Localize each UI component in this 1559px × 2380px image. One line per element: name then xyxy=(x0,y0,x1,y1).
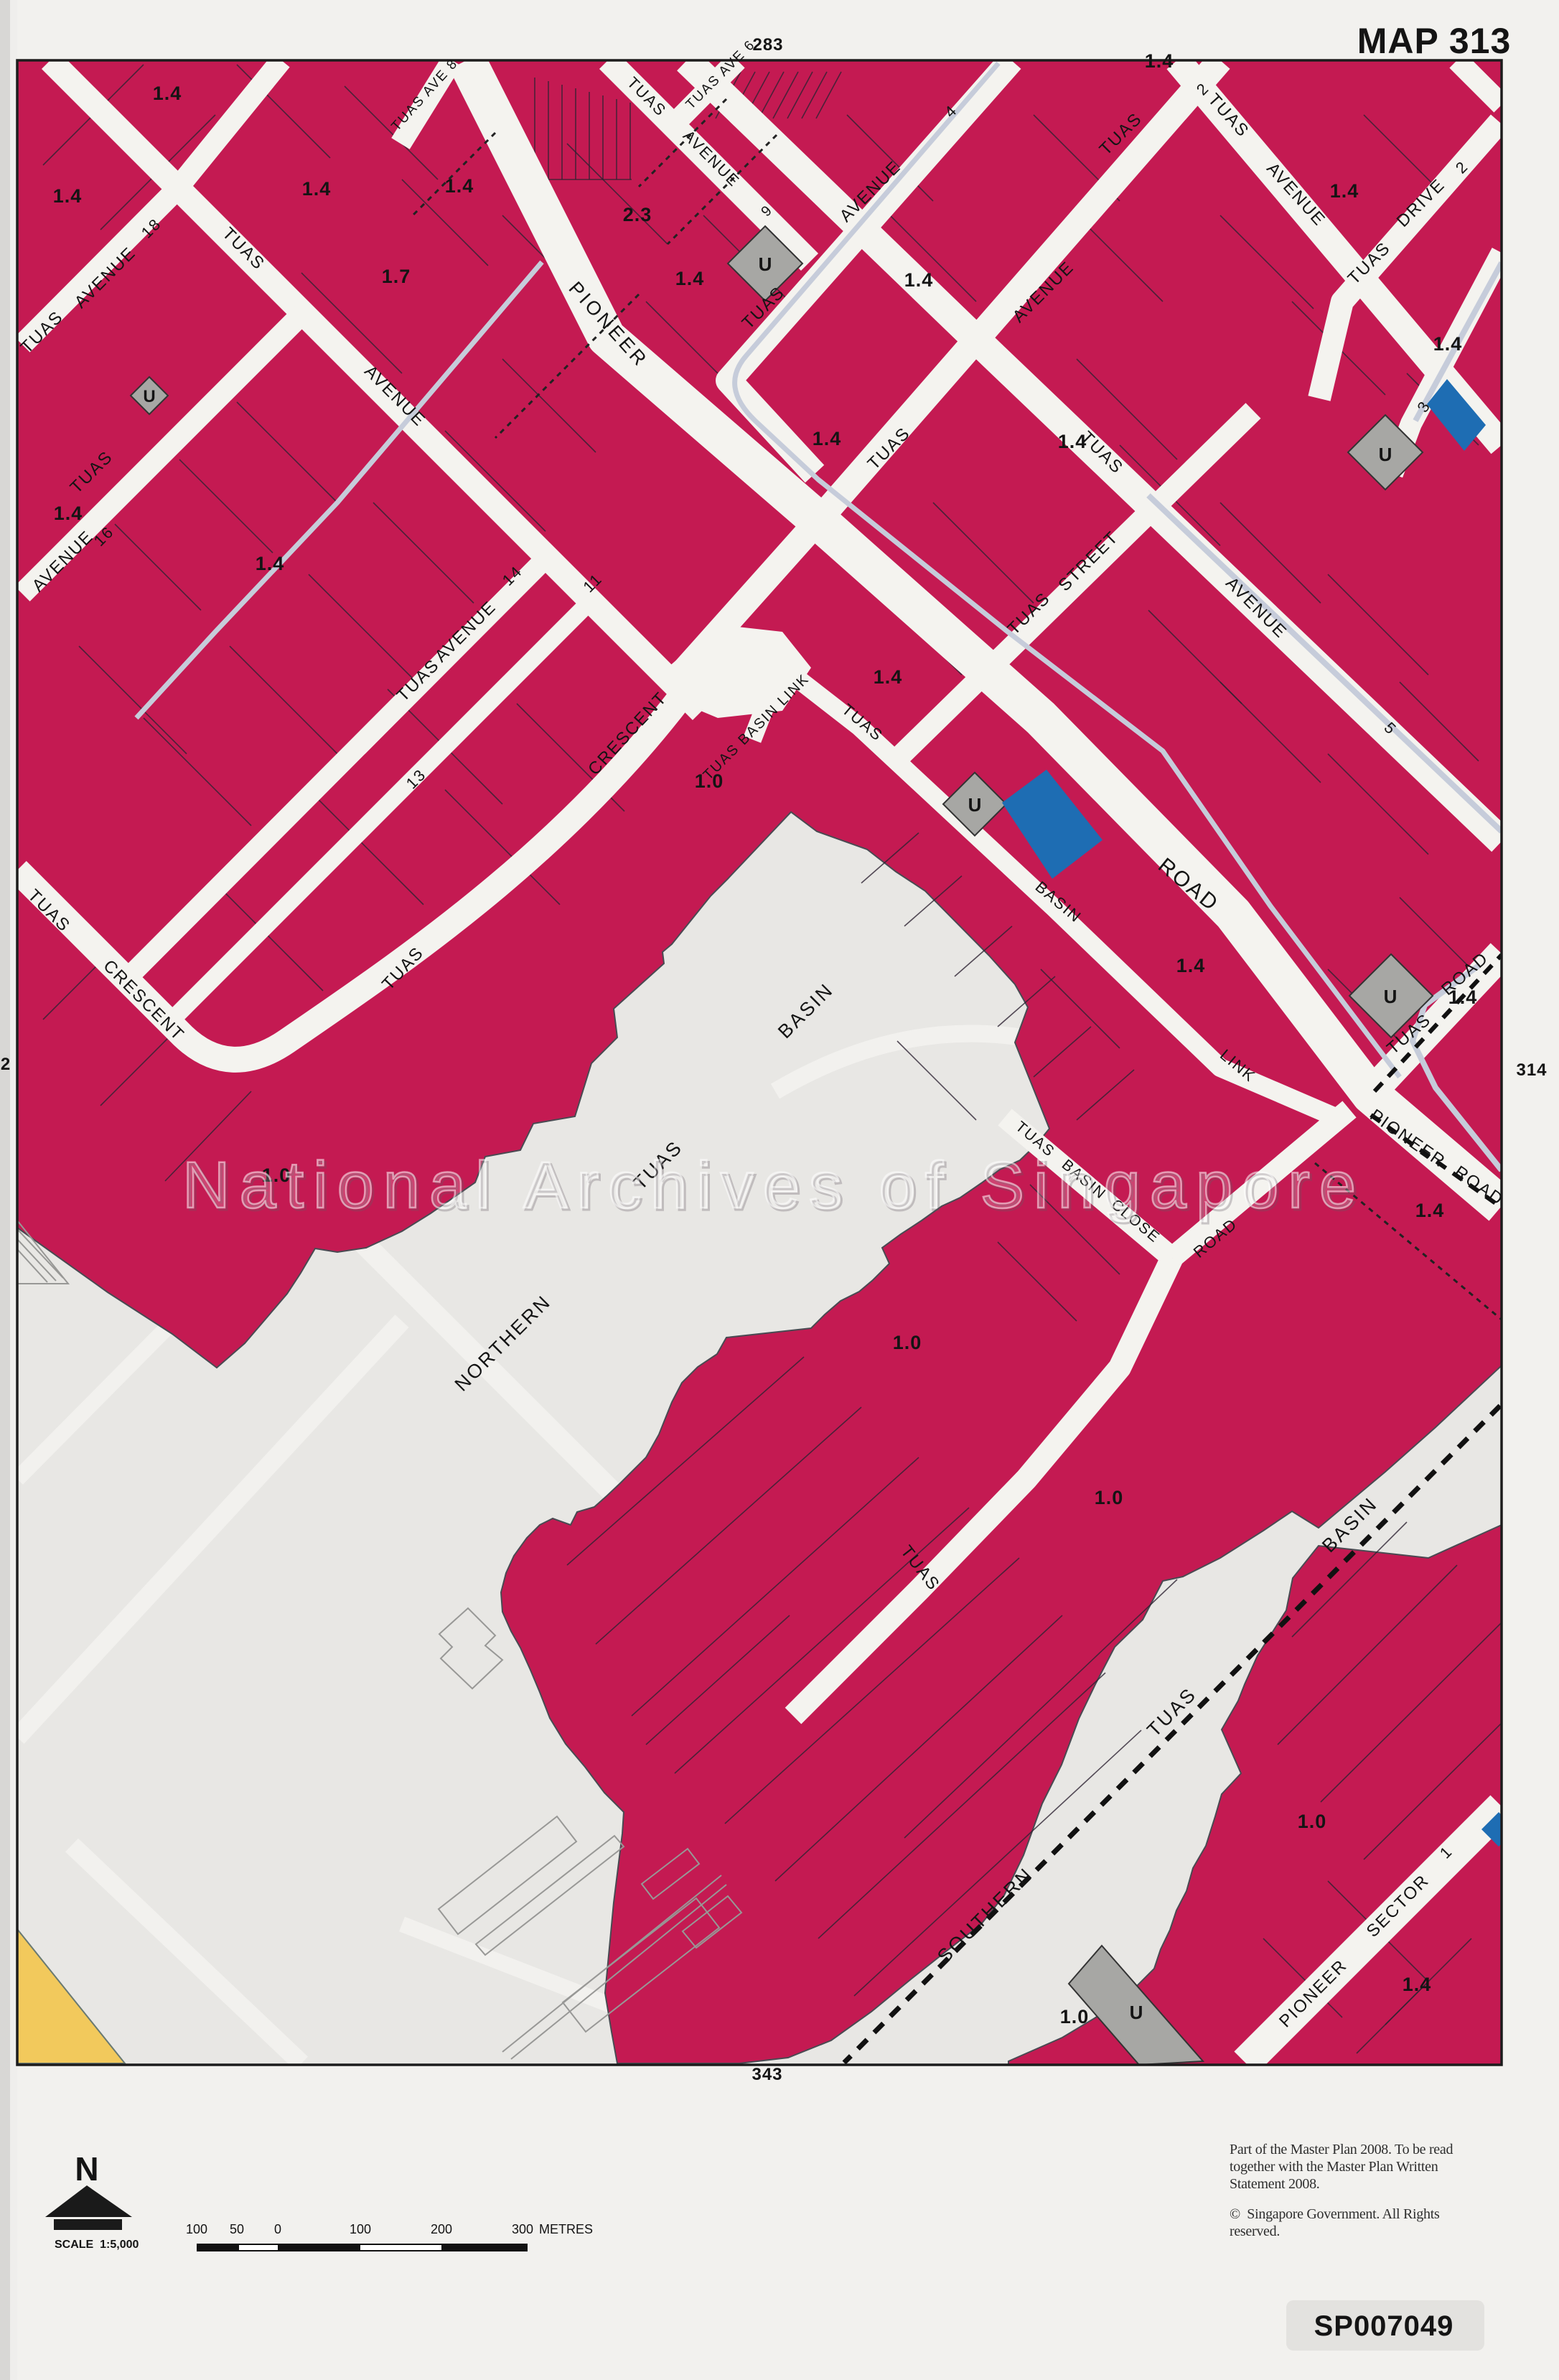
svg-text:METRES: METRES xyxy=(539,2222,593,2236)
svg-text:100: 100 xyxy=(186,2222,207,2236)
svg-text:2.3: 2.3 xyxy=(623,204,652,225)
svg-text:1.0: 1.0 xyxy=(893,1332,922,1353)
svg-text:1.4: 1.4 xyxy=(1145,50,1174,72)
svg-text:U: U xyxy=(968,794,982,816)
svg-text:1.4: 1.4 xyxy=(445,175,474,197)
svg-text:1.4: 1.4 xyxy=(153,83,182,104)
svg-text:1.4: 1.4 xyxy=(675,268,705,289)
svg-text:1.0: 1.0 xyxy=(1298,1811,1327,1832)
svg-text:N: N xyxy=(75,2150,98,2188)
svg-text:Statement 2008.: Statement 2008. xyxy=(1230,2176,1319,2192)
svg-text:1.4: 1.4 xyxy=(256,553,285,574)
svg-text:reserved.: reserved. xyxy=(1230,2223,1280,2239)
svg-text:1.7: 1.7 xyxy=(382,266,411,287)
svg-text:SP007049: SP007049 xyxy=(1314,2310,1454,2342)
svg-text:together with the Master Plan: together with the Master Plan Written xyxy=(1230,2159,1438,2175)
svg-text:1.4: 1.4 xyxy=(1433,333,1463,355)
svg-text:1.4: 1.4 xyxy=(302,178,332,200)
svg-text:314: 314 xyxy=(1516,1060,1547,1080)
svg-text:U: U xyxy=(759,253,772,275)
svg-text:1.0: 1.0 xyxy=(1060,2006,1090,2027)
svg-text:1.4: 1.4 xyxy=(53,185,83,207)
svg-text:50: 50 xyxy=(230,2222,244,2236)
svg-text:U: U xyxy=(1379,444,1392,465)
svg-text:MAP 313: MAP 313 xyxy=(1357,21,1512,61)
svg-text:1.4: 1.4 xyxy=(1448,986,1478,1008)
svg-text:1.0: 1.0 xyxy=(695,770,724,792)
svg-text:1.4: 1.4 xyxy=(904,269,934,291)
svg-text:283: 283 xyxy=(752,35,783,55)
svg-text:1.4: 1.4 xyxy=(1403,1974,1432,1995)
svg-text:2: 2 xyxy=(1,1055,11,1074)
svg-text:U: U xyxy=(1130,2002,1143,2023)
svg-text:© Singapore Government. All R: © Singapore Government. All Rights xyxy=(1230,2206,1440,2222)
svg-text:1.4: 1.4 xyxy=(1058,431,1087,452)
svg-text:SCALE 1:5,000: SCALE 1:5,000 xyxy=(55,2239,139,2251)
svg-text:100: 100 xyxy=(350,2222,371,2236)
svg-text:1.4: 1.4 xyxy=(1176,955,1206,976)
svg-text:1.4: 1.4 xyxy=(874,666,903,688)
svg-text:National Archives of Singapore: National Archives of Singapore xyxy=(182,1149,1365,1222)
svg-text:U: U xyxy=(1384,986,1398,1007)
svg-text:343: 343 xyxy=(752,2065,782,2084)
svg-text:1.4: 1.4 xyxy=(54,503,83,524)
svg-text:0: 0 xyxy=(274,2222,281,2236)
svg-text:300: 300 xyxy=(512,2222,533,2236)
svg-text:1.4: 1.4 xyxy=(1330,180,1359,202)
svg-text:200: 200 xyxy=(431,2222,452,2236)
svg-text:1.4: 1.4 xyxy=(1415,1200,1445,1221)
svg-text:1.4: 1.4 xyxy=(813,428,842,449)
svg-text:U: U xyxy=(143,387,155,406)
svg-text:Part of the Master Plan 2008.: Part of the Master Plan 2008. To be read xyxy=(1230,2142,1453,2157)
svg-text:1.0: 1.0 xyxy=(1095,1487,1124,1508)
